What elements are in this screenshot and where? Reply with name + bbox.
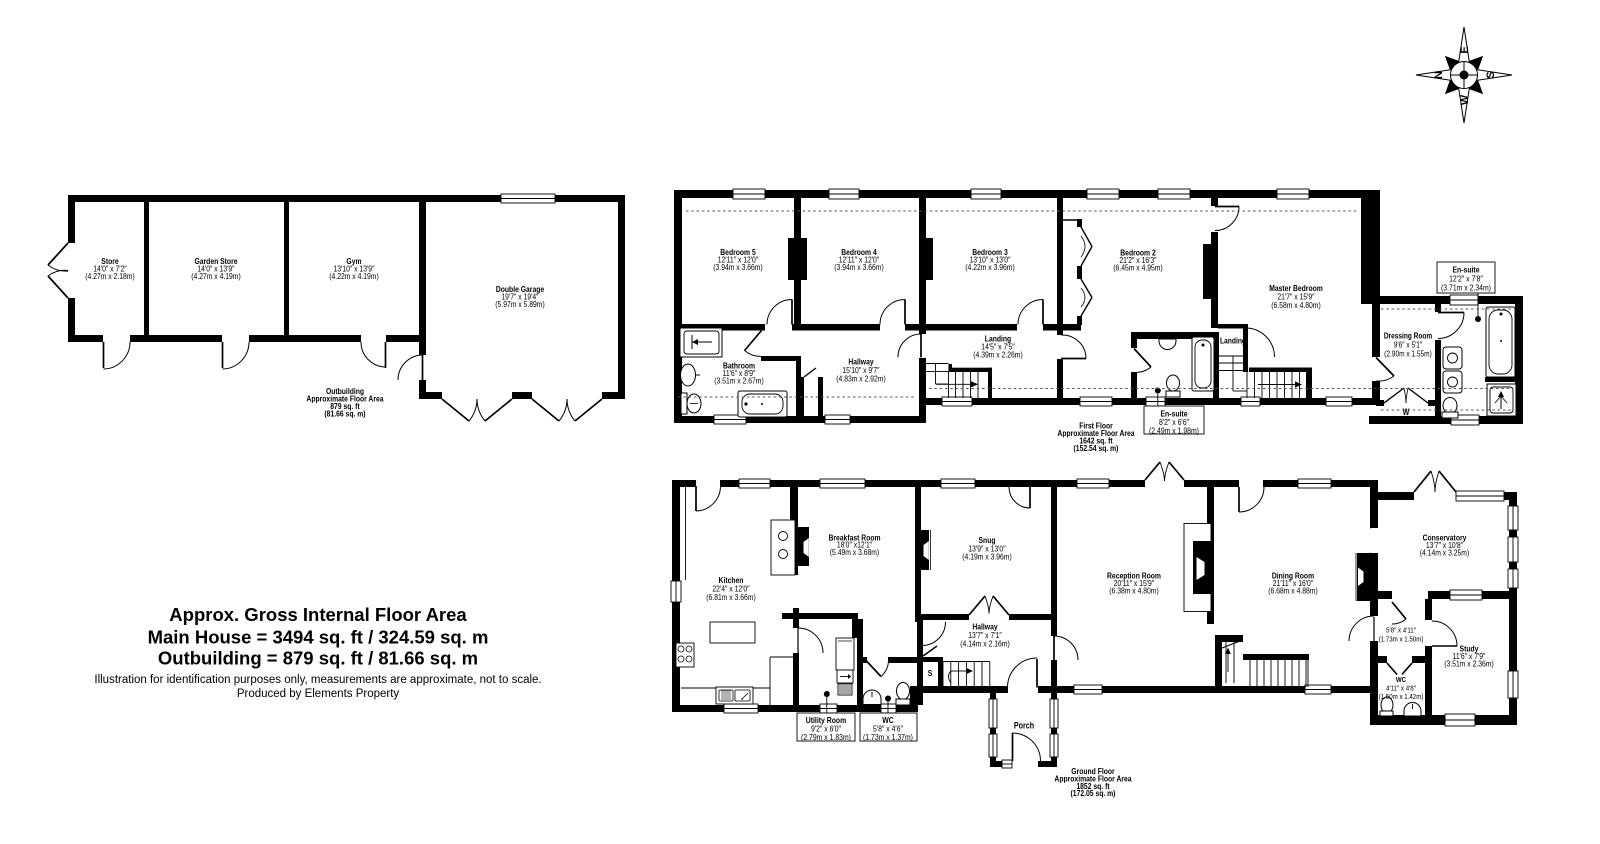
svg-text:Landing: Landing: [1220, 336, 1246, 346]
svg-text:Bedroom 221′2″ x 16′3″(6.45m x: Bedroom 221′2″ x 16′3″(6.45m x 4.95m): [1113, 248, 1163, 273]
svg-text:S: S: [928, 668, 933, 678]
svg-text:N: N: [1433, 71, 1445, 79]
svg-text:S: S: [1485, 71, 1497, 78]
svg-text:Porch: Porch: [1014, 721, 1034, 731]
svg-text:W: W: [1403, 407, 1410, 417]
svg-text:Main House = 3494 sq. ft / 324: Main House = 3494 sq. ft / 324.59 sq. m: [148, 627, 489, 648]
svg-text:Illustration for identificatio: Illustration for identification purposes…: [94, 674, 541, 686]
svg-text:Double Garage19′7″ x 19′4″(5.9: Double Garage19′7″ x 19′4″(5.97m x 5.89m…: [495, 284, 545, 309]
svg-text:Bedroom 512′11″ x 12′0″(3.94m: Bedroom 512′11″ x 12′0″(3.94m x 3.66m): [713, 247, 763, 272]
svg-text:E: E: [1459, 46, 1471, 53]
svg-text:Dining Room21′11″ x 16′0″(6.68: Dining Room21′11″ x 16′0″(6.68m x 4.88m): [1268, 571, 1318, 596]
svg-text:Conservatory13′7″ x 10′8″(4.14: Conservatory13′7″ x 10′8″(4.14m x 3.25m): [1420, 533, 1470, 558]
svg-text:Bedroom 412′11″ x 12′0″(3.94m: Bedroom 412′11″ x 12′0″(3.94m x 3.66m): [834, 247, 884, 272]
svg-text:Reception Room20′11″ x 15′9″(6: Reception Room20′11″ x 15′9″(6.38m x 4.8…: [1107, 571, 1161, 596]
svg-text:Bedroom 313′10″ x 13′0″(4.22m: Bedroom 313′10″ x 13′0″(4.22m x 3.96m): [965, 247, 1015, 272]
svg-text:Outbuilding = 879 sq. ft / 81.: Outbuilding = 879 sq. ft / 81.66 sq. m: [158, 648, 478, 669]
svg-text:Garden Store14′0″ x 13′9″(4.27: Garden Store14′0″ x 13′9″(4.27m x 4.19m): [191, 256, 241, 281]
svg-text:W: W: [1459, 94, 1471, 105]
svg-text:Produced by Elements Property: Produced by Elements Property: [237, 688, 400, 700]
svg-text:Approx. Gross Internal Floor A: Approx. Gross Internal Floor Area: [169, 604, 467, 625]
